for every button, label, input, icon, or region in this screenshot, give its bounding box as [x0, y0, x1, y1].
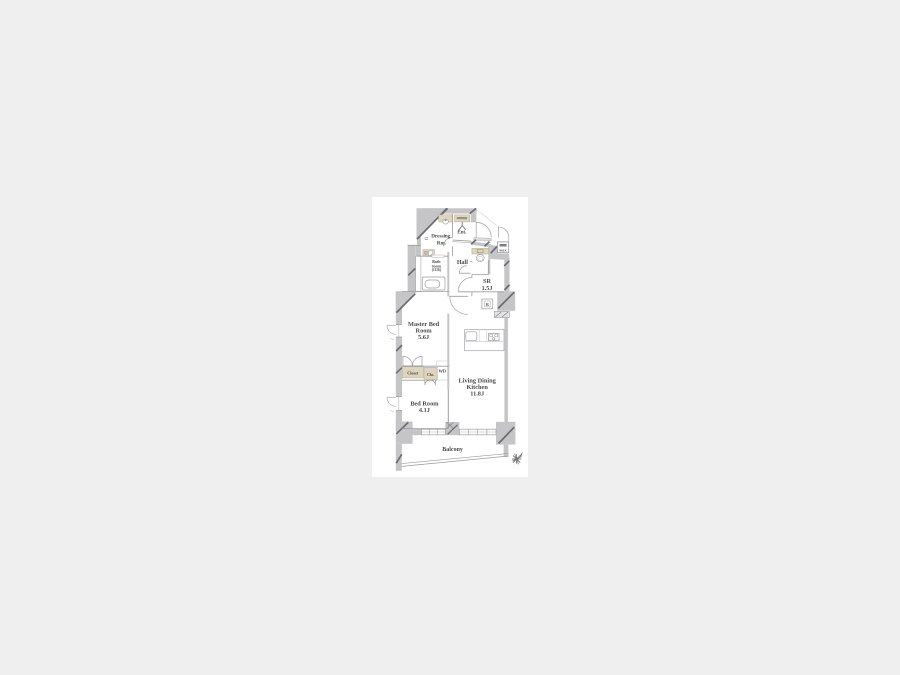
- svg-text:4.1J: 4.1J: [419, 407, 430, 414]
- svg-text:Rm.: Rm.: [437, 240, 447, 246]
- svg-text:BOX: BOX: [499, 248, 507, 252]
- svg-text:5.6J: 5.6J: [418, 334, 429, 341]
- svg-text:Ent.: Ent.: [457, 231, 467, 236]
- svg-text:Hall: Hall: [457, 260, 468, 266]
- svg-text:11.8J: 11.8J: [470, 391, 484, 398]
- svg-text:1.5J: 1.5J: [482, 285, 493, 292]
- svg-text:Closet: Closet: [407, 371, 419, 376]
- svg-text:Dressing: Dressing: [431, 234, 451, 240]
- svg-text:Balcony: Balcony: [442, 447, 463, 453]
- svg-text:R: R: [486, 302, 489, 307]
- svg-text:(1116): (1116): [432, 268, 442, 272]
- svg-text:Clo.: Clo.: [427, 372, 434, 377]
- svg-text:WD: WD: [439, 369, 447, 374]
